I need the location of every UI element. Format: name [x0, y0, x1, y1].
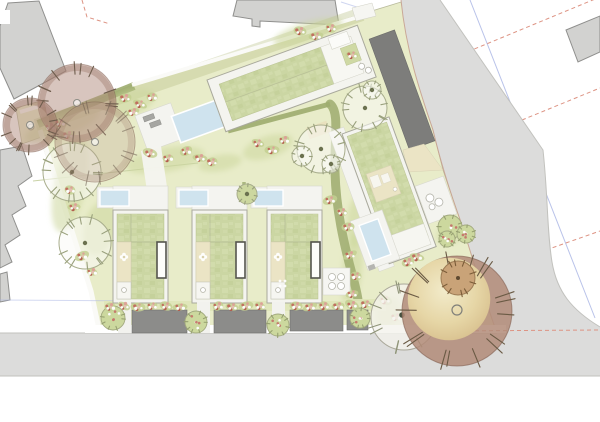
- parking-pad: [132, 310, 187, 333]
- site-plan-canvas: [0, 0, 600, 422]
- patio-chair: [338, 283, 345, 290]
- house-atrium: [271, 242, 285, 282]
- roof-skylight: [157, 242, 166, 278]
- house-atrium: [196, 242, 210, 282]
- parking-pads-layer: [132, 310, 368, 333]
- patio-group: [323, 268, 350, 295]
- parking-pad: [290, 310, 343, 331]
- entry-dot: [201, 288, 206, 293]
- roof-vent-dot: [279, 280, 282, 283]
- roof-vent-dot: [284, 285, 287, 288]
- house-atrium: [117, 242, 131, 282]
- roof-vent-dot: [284, 280, 287, 283]
- house-pool: [254, 190, 283, 206]
- roof-skylight: [236, 242, 245, 278]
- atrium-plant-icon: [277, 256, 280, 259]
- garden-patio: [323, 268, 350, 295]
- patio-chair: [338, 274, 345, 281]
- neighbor-nw-notch: [0, 10, 10, 24]
- patio-chair: [329, 283, 336, 290]
- entry-dot: [122, 288, 127, 293]
- proposed-tree: [322, 155, 340, 174]
- patio-chair: [329, 274, 336, 281]
- roof-skylight: [311, 242, 320, 278]
- flowering-tree: [456, 225, 475, 243]
- site-plan-page: [0, 0, 600, 422]
- atrium-plant-icon: [202, 256, 205, 259]
- house-pool: [179, 190, 208, 206]
- proposed-tree: [237, 183, 257, 204]
- row-houses-layer: [97, 186, 322, 303]
- roof-vent-dot: [279, 285, 282, 288]
- parking-pad: [214, 310, 266, 333]
- house-pool: [100, 190, 129, 206]
- atrium-plant-icon: [123, 256, 126, 259]
- entry-dot: [276, 288, 281, 293]
